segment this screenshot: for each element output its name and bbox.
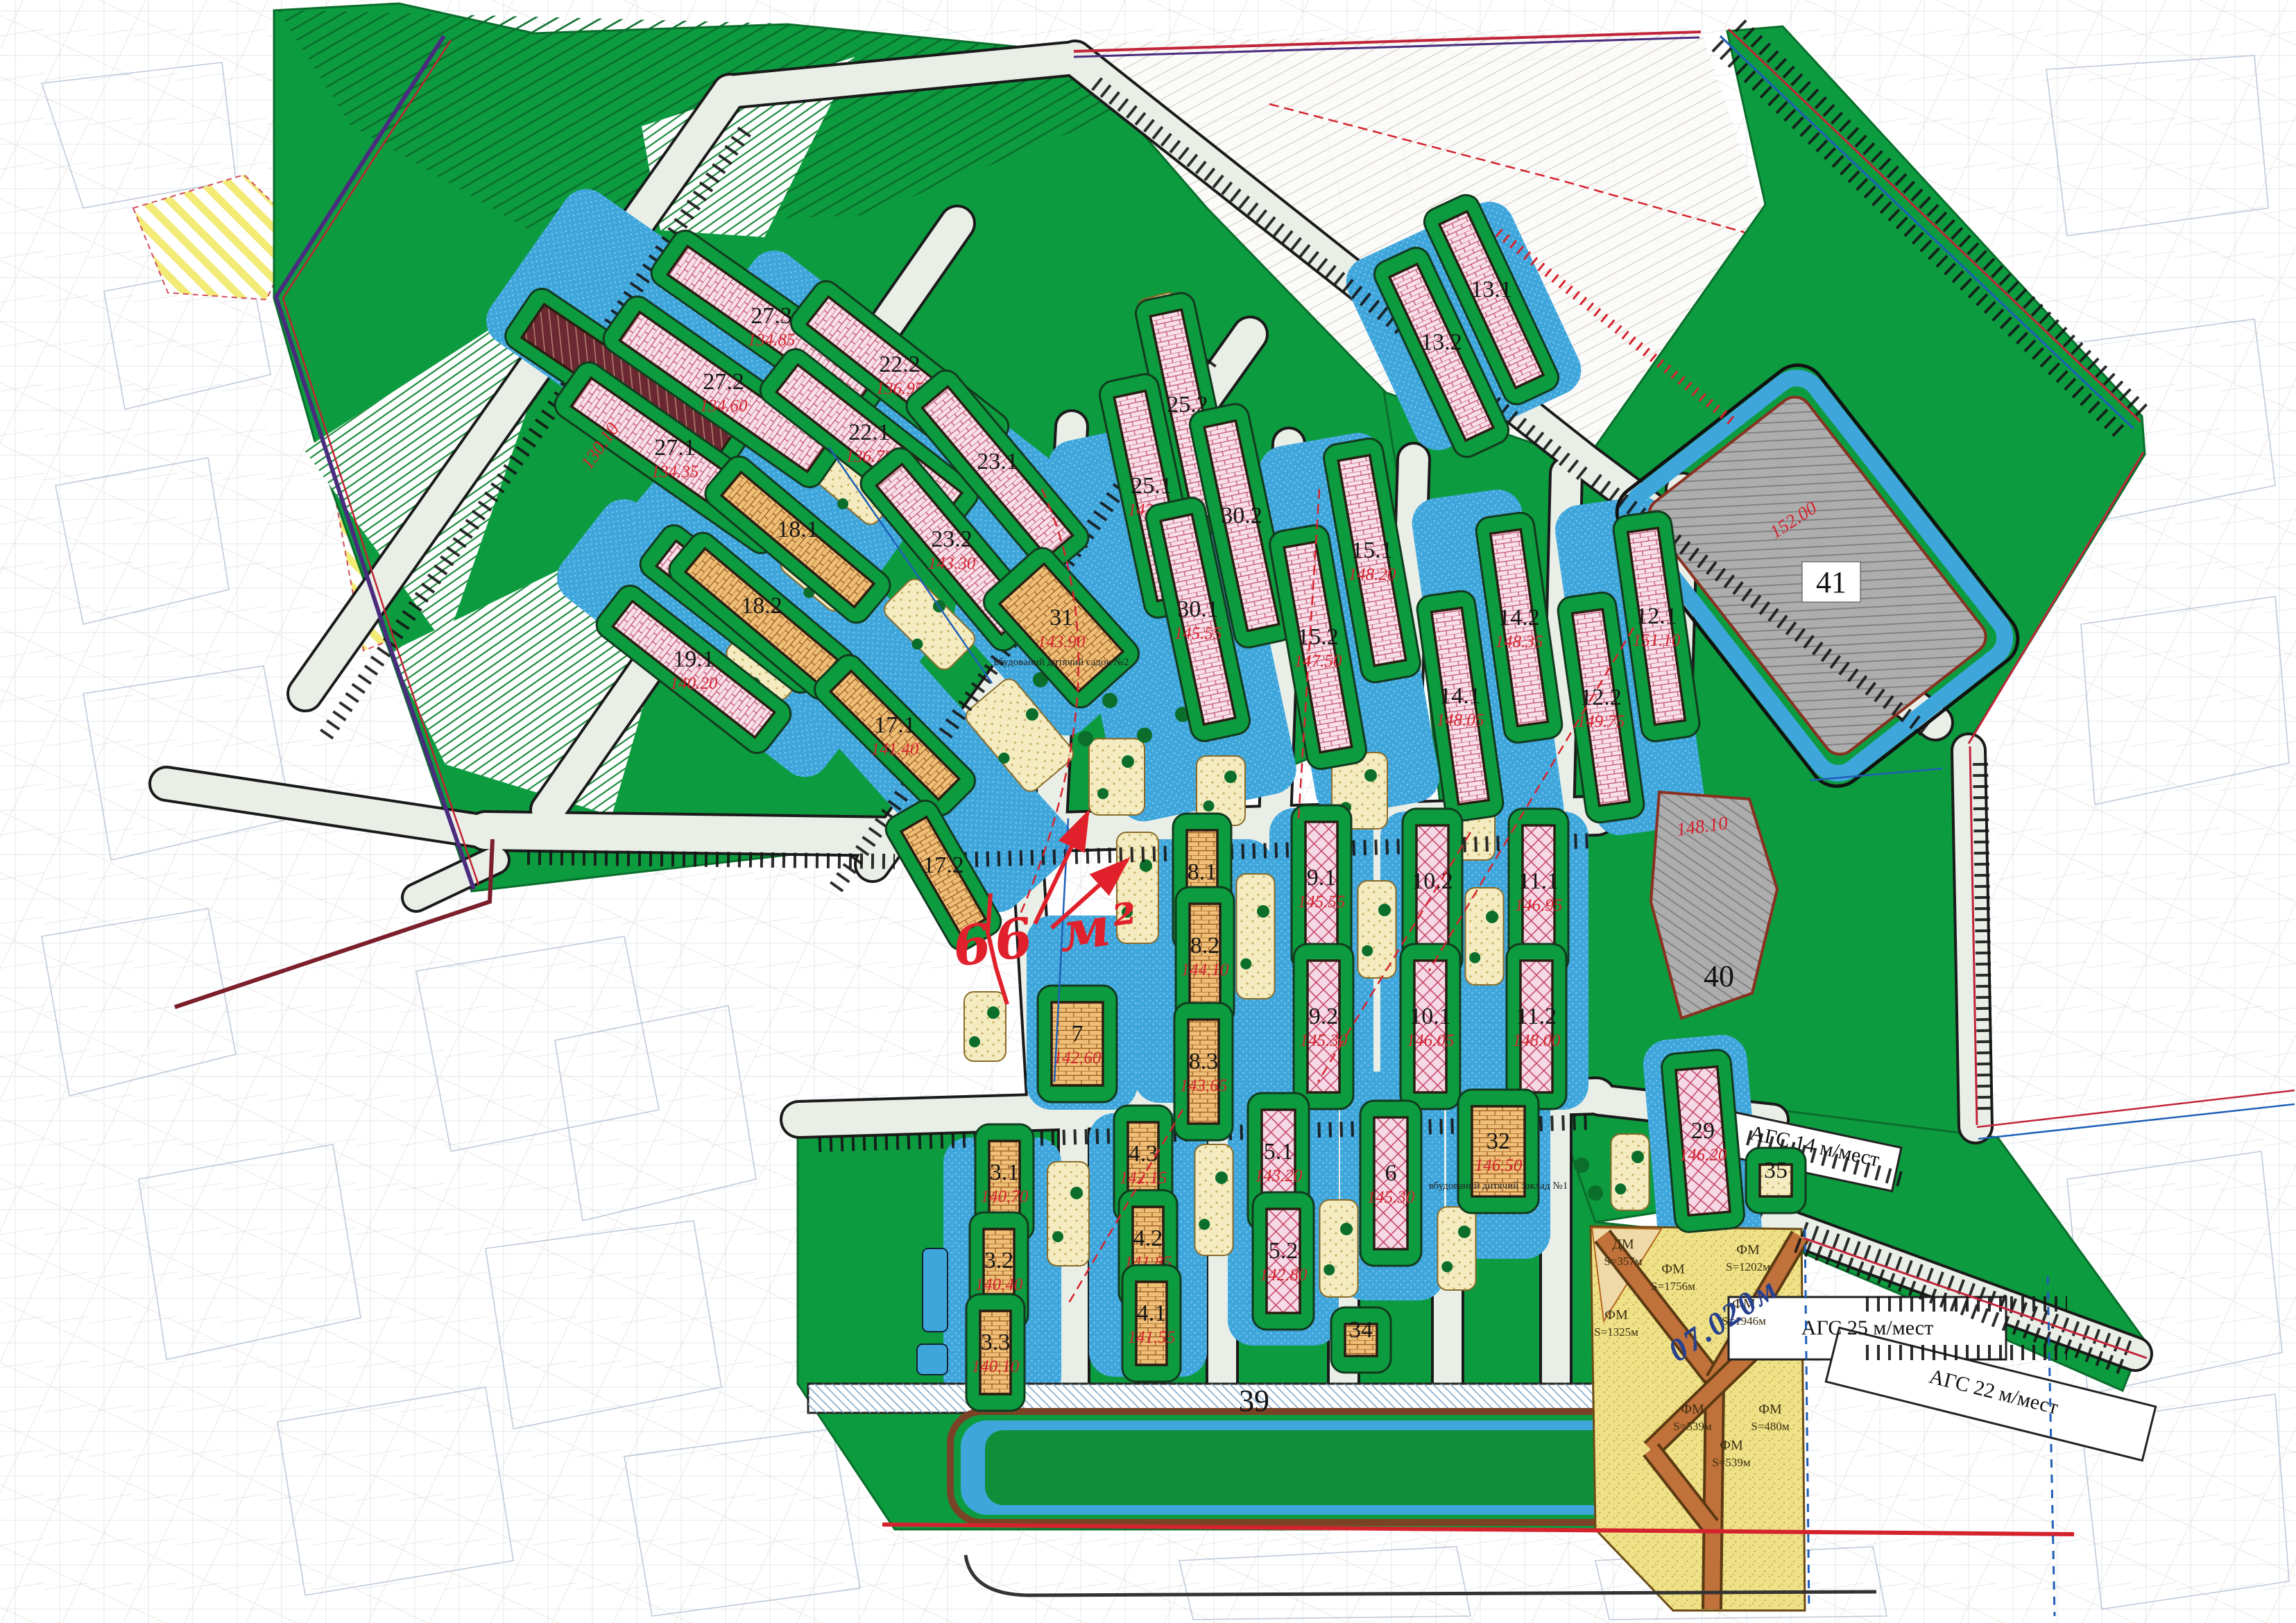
building-elevation: 145.55 (1174, 624, 1222, 643)
building-6: 6145.30 (1360, 1101, 1421, 1266)
building-elevation: 134.35 (651, 463, 699, 481)
masterplan-page: 27.3134.8527.2134.6027.1134.3522.2136.95… (0, 0, 2296, 1623)
building-34: 34 (1331, 1307, 1391, 1373)
building-caption: вбудований дитячий садок №2 (994, 657, 1129, 668)
building-elevation: 141.40 (871, 740, 919, 759)
building-elevation: 148.35 (1496, 633, 1543, 651)
building-number: 6 (1385, 1160, 1397, 1186)
building-11.2: 11.2148.00 (1507, 944, 1566, 1109)
building-number: 3.1 (990, 1160, 1020, 1185)
building-number: 5.2 (1269, 1238, 1299, 1264)
building-29: 29146.20 (1661, 1049, 1745, 1233)
zone-label: ФМ (1604, 1307, 1628, 1323)
zone-label: ФМ (1661, 1262, 1685, 1277)
area-label-40: 40 (1704, 959, 1734, 993)
building-elevation: 151.10 (1633, 631, 1681, 650)
building-elevation: 149.75 (1577, 712, 1625, 731)
fm-path (1712, 1380, 1715, 1609)
building-elevation: 146.05 (1407, 1031, 1455, 1050)
building-elevation: 145.30 (1300, 1031, 1348, 1050)
building-number: 19.1 (673, 646, 714, 672)
building-5.2: 5.2142.80 (1253, 1192, 1314, 1330)
building-number: 4.1 (1137, 1300, 1167, 1326)
building-number: 27.2 (703, 369, 744, 395)
building-number: 11.1 (1518, 868, 1559, 894)
building-9.2: 9.2145.30 (1294, 944, 1353, 1109)
building-elevation: 134.60 (700, 397, 748, 415)
building-elevation: 148.20 (1348, 565, 1396, 584)
building-number: 8.3 (1189, 1049, 1219, 1074)
building-number: 23.1 (977, 449, 1018, 474)
building-number: 32 (1487, 1128, 1510, 1154)
building-elevation: 144.10 (1181, 961, 1229, 979)
building-elevation: 140.40 (975, 1276, 1023, 1294)
playground (1195, 1144, 1233, 1255)
tree (1574, 1158, 1589, 1173)
building-elevation: 147.50 (1294, 652, 1342, 671)
zone-label: ДМ (1612, 1237, 1634, 1252)
building-3.3: 3.3140.10 (966, 1294, 1025, 1411)
building-number: 30.1 (1177, 596, 1219, 622)
building-elevation: 134.85 (748, 331, 796, 350)
zone-area-size: S=357м (1604, 1255, 1643, 1268)
building-elevation: 142.60 (1054, 1049, 1102, 1067)
building-elevation: 140.70 (981, 1187, 1029, 1206)
zone-area-size: S=539м (1673, 1420, 1712, 1433)
area-label-39: 39 (1239, 1384, 1269, 1418)
building-number: 18.2 (741, 593, 782, 619)
playground (964, 992, 1006, 1061)
building-number: 14.2 (1498, 605, 1540, 630)
building-elevation: 140.10 (972, 1357, 1020, 1376)
building-number: 29 (1691, 1118, 1715, 1144)
building-number: 17.2 (923, 852, 964, 878)
building-number: 27.3 (751, 303, 792, 329)
building-number: 30.2 (1221, 503, 1262, 529)
zone-area-size: S=1325м (1594, 1325, 1638, 1339)
building-number: 22.2 (879, 352, 920, 377)
building-number: 4.2 (1133, 1226, 1163, 1251)
building-elevation: 141.55 (1128, 1328, 1176, 1347)
building-number: 9.1 (1307, 865, 1337, 891)
building-number: 25.1 (1131, 473, 1172, 499)
playground (1438, 1207, 1476, 1290)
building-number: 12.1 (1636, 603, 1677, 629)
zone-label: ФМ (1720, 1438, 1743, 1453)
area-label-41: 41 (1816, 565, 1847, 599)
tree (1588, 1185, 1603, 1201)
building-number: 31 (1050, 605, 1073, 630)
building-number: 13.1 (1471, 277, 1512, 302)
building-4.1: 4.1141.55 (1122, 1265, 1181, 1382)
building-elevation: 146.20 (1679, 1146, 1727, 1165)
zone-label: ФМ (1758, 1402, 1782, 1417)
zone-label: ФМ (1681, 1402, 1704, 1417)
playground (1466, 888, 1504, 985)
building-number: 10.1 (1410, 1004, 1451, 1029)
building-number: 8.2 (1190, 933, 1220, 959)
playground (1237, 874, 1275, 999)
zone-area-size: S=539м (1712, 1456, 1751, 1469)
building-elevation: 145.30 (1367, 1188, 1415, 1207)
building-caption: вбудований дитячий заклад №1 (1429, 1180, 1568, 1192)
building-elevation: 148.05 (1437, 711, 1484, 730)
building-number: 27.1 (654, 435, 696, 461)
building-number: 3.2 (984, 1248, 1014, 1273)
playground (1089, 739, 1145, 815)
tree (1078, 731, 1093, 746)
building-number: 23.2 (931, 526, 973, 552)
building-number: 15.1 (1351, 538, 1393, 563)
zone-area-size: S=480м (1751, 1420, 1790, 1433)
building-elevation: 146.50 (1475, 1156, 1523, 1175)
building-elevation: 146.95 (1515, 896, 1563, 915)
building-number: 8.1 (1188, 859, 1217, 885)
zone-label: ФМ (1736, 1242, 1760, 1257)
playground (1047, 1162, 1089, 1266)
building-number: 17.1 (874, 712, 916, 738)
building-elevation: 143.30 (928, 554, 976, 573)
building-elevation: 140.20 (670, 674, 718, 693)
playground (1320, 1200, 1358, 1297)
building-elevation: 143.65 (1180, 1076, 1228, 1095)
building-number: 18.1 (777, 517, 819, 542)
pond (917, 1344, 948, 1375)
tree (1137, 728, 1152, 743)
building-number: 3.3 (981, 1330, 1011, 1355)
building-number: 13.2 (1421, 329, 1462, 355)
building-number: 34 (1349, 1317, 1373, 1343)
pond (923, 1248, 948, 1332)
building-elevation: 142.80 (1260, 1266, 1308, 1285)
building-number: 4.3 (1129, 1141, 1158, 1167)
building-35: 35 (1746, 1148, 1806, 1213)
parking-label: АГС 25 м/мест (1801, 1316, 1933, 1339)
building-number: 14.1 (1439, 683, 1481, 709)
building-number: 22.1 (848, 420, 890, 445)
tree (1102, 693, 1117, 708)
building-number: 15.2 (1297, 624, 1339, 650)
building-elevation: 143.20 (1255, 1167, 1303, 1185)
building-elevation: 145.55 (1298, 893, 1346, 911)
building-number: 11.2 (1516, 1004, 1557, 1029)
building-number: 7 (1072, 1021, 1083, 1047)
building-number: 5.1 (1264, 1139, 1294, 1165)
building-8.3: 8.3143.65 (1174, 1003, 1233, 1140)
playground (1611, 1134, 1650, 1210)
zone-area-size: S=1756м (1651, 1280, 1695, 1293)
building-number: 35 (1764, 1158, 1788, 1183)
building-elevation: 148.00 (1513, 1031, 1561, 1050)
masterplan-map: 27.3134.8527.2134.6027.1134.3522.2136.95… (0, 0, 2296, 1623)
building-7: 7142.60 (1038, 986, 1117, 1102)
building-number: 9.2 (1309, 1004, 1339, 1029)
